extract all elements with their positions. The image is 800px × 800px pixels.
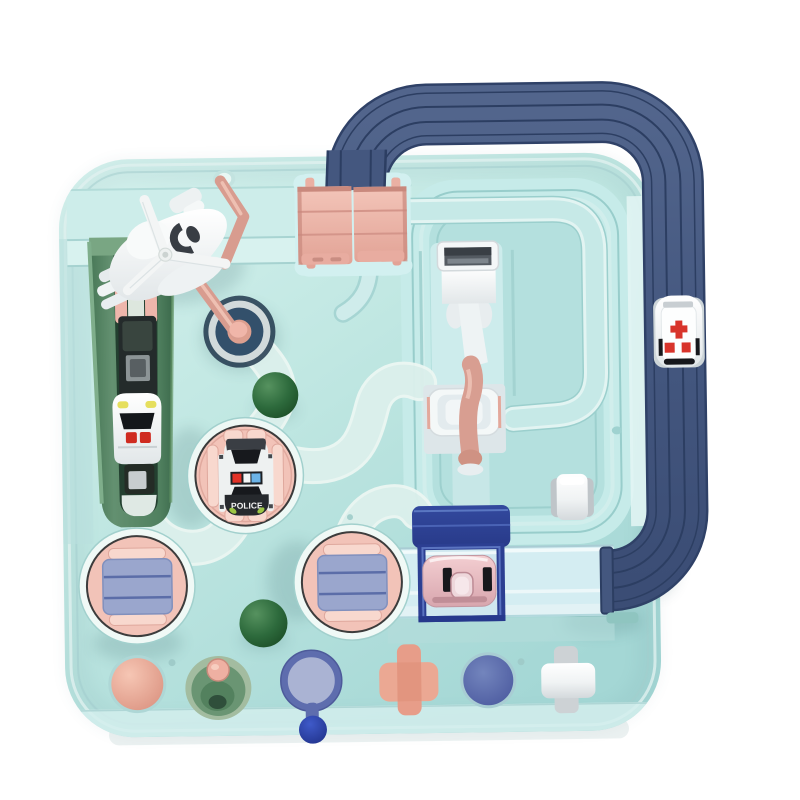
svg-text:POLICE: POLICE <box>231 500 263 510</box>
